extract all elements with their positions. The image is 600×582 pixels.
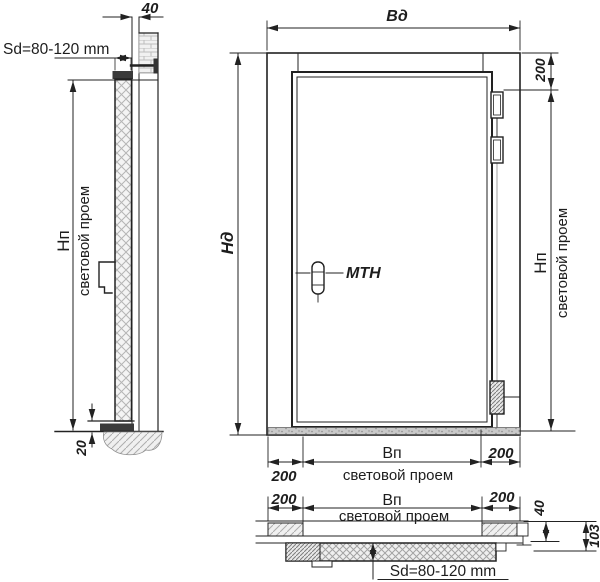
door-leaf-section xyxy=(115,79,132,421)
plan-view: 200 Вп световой проем 200 Sd=80-120 mm xyxy=(256,489,600,580)
door-leaf-front xyxy=(292,72,492,427)
side-opening-height-sub: световой проем xyxy=(76,186,93,296)
front-door-width-value: Вд xyxy=(386,8,408,25)
front-left-margin-value: 200 xyxy=(270,468,297,485)
front-view: МТН Вд Нд 200 Нп световой xyxy=(218,8,575,485)
plan-left-wall-block xyxy=(268,523,303,536)
plan-right-wall-block xyxy=(482,523,517,536)
front-opening-height-value: Нп xyxy=(531,252,550,273)
handle-type-label: МТН xyxy=(346,265,381,282)
ground-hatch xyxy=(103,432,162,455)
dim-side-sd: Sd=80-120 mm xyxy=(3,41,131,70)
side-wall-offset-value: 40 xyxy=(141,0,159,17)
plan-left-margin-value: 200 xyxy=(270,491,297,508)
dim-front-width: Вд xyxy=(267,8,520,50)
front-right-margin-value: 200 xyxy=(487,445,514,462)
front-opening-width-value: Вп xyxy=(382,445,401,462)
dim-plan-103: 103 xyxy=(534,522,600,552)
leaf-top-cap xyxy=(113,71,134,79)
plan-opening-width-value: Вп xyxy=(382,492,401,509)
hinge-bottom xyxy=(490,381,520,427)
dim-side-40: 40 xyxy=(103,0,163,17)
plan-total-depth-value: 103 xyxy=(586,524,600,548)
dim-front-opening-height: Нп световой проем xyxy=(531,91,571,430)
front-hinge-offset-value: 200 xyxy=(532,58,548,83)
handle-side-profile xyxy=(99,262,115,293)
plan-frame-depth-value: 40 xyxy=(531,500,547,517)
dim-hinge-offset: 200 xyxy=(504,53,558,90)
front-opening-height-sub: световой проем xyxy=(554,208,571,318)
plan-leaf-thickness-label: Sd=80-120 mm xyxy=(390,563,496,580)
side-leaf-thickness-label: Sd=80-120 mm xyxy=(3,41,109,58)
plan-opening-width-sub: световой проем xyxy=(339,508,449,525)
front-opening-width-sub: световой проем xyxy=(343,467,453,484)
dim-front-bottom: 200 Вп световой проем 200 xyxy=(268,430,520,485)
dim-plan-top: 200 Вп световой проем 200 xyxy=(268,489,520,525)
leaf-bottom-cap xyxy=(100,424,134,432)
dim-front-height: Нд xyxy=(218,53,267,435)
hinge-top-2 xyxy=(491,137,503,163)
side-view: 40 Sd=80-120 mm Hп световой проем xyxy=(3,0,163,457)
dim-plan-40: 40 xyxy=(524,500,559,541)
front-door-height-value: Нд xyxy=(218,232,237,255)
dim-side-20: 20 xyxy=(73,404,92,457)
threshold-bar xyxy=(268,428,520,435)
plan-right-margin-value: 200 xyxy=(488,489,515,506)
side-threshold-gap-value: 20 xyxy=(73,440,89,457)
plan-right-frame-corner xyxy=(517,523,528,536)
plan-leaf-left-block xyxy=(286,543,320,561)
hinge-top-1 xyxy=(491,92,503,118)
plan-leaf-right-notch xyxy=(496,543,506,551)
plan-leaf-tab xyxy=(312,561,332,567)
door-installation-drawing: 40 Sd=80-120 mm Hп световой проем xyxy=(0,0,600,582)
dim-side-opening-height: Hп световой проем xyxy=(54,81,93,430)
side-opening-height-value: Hп xyxy=(54,230,73,251)
